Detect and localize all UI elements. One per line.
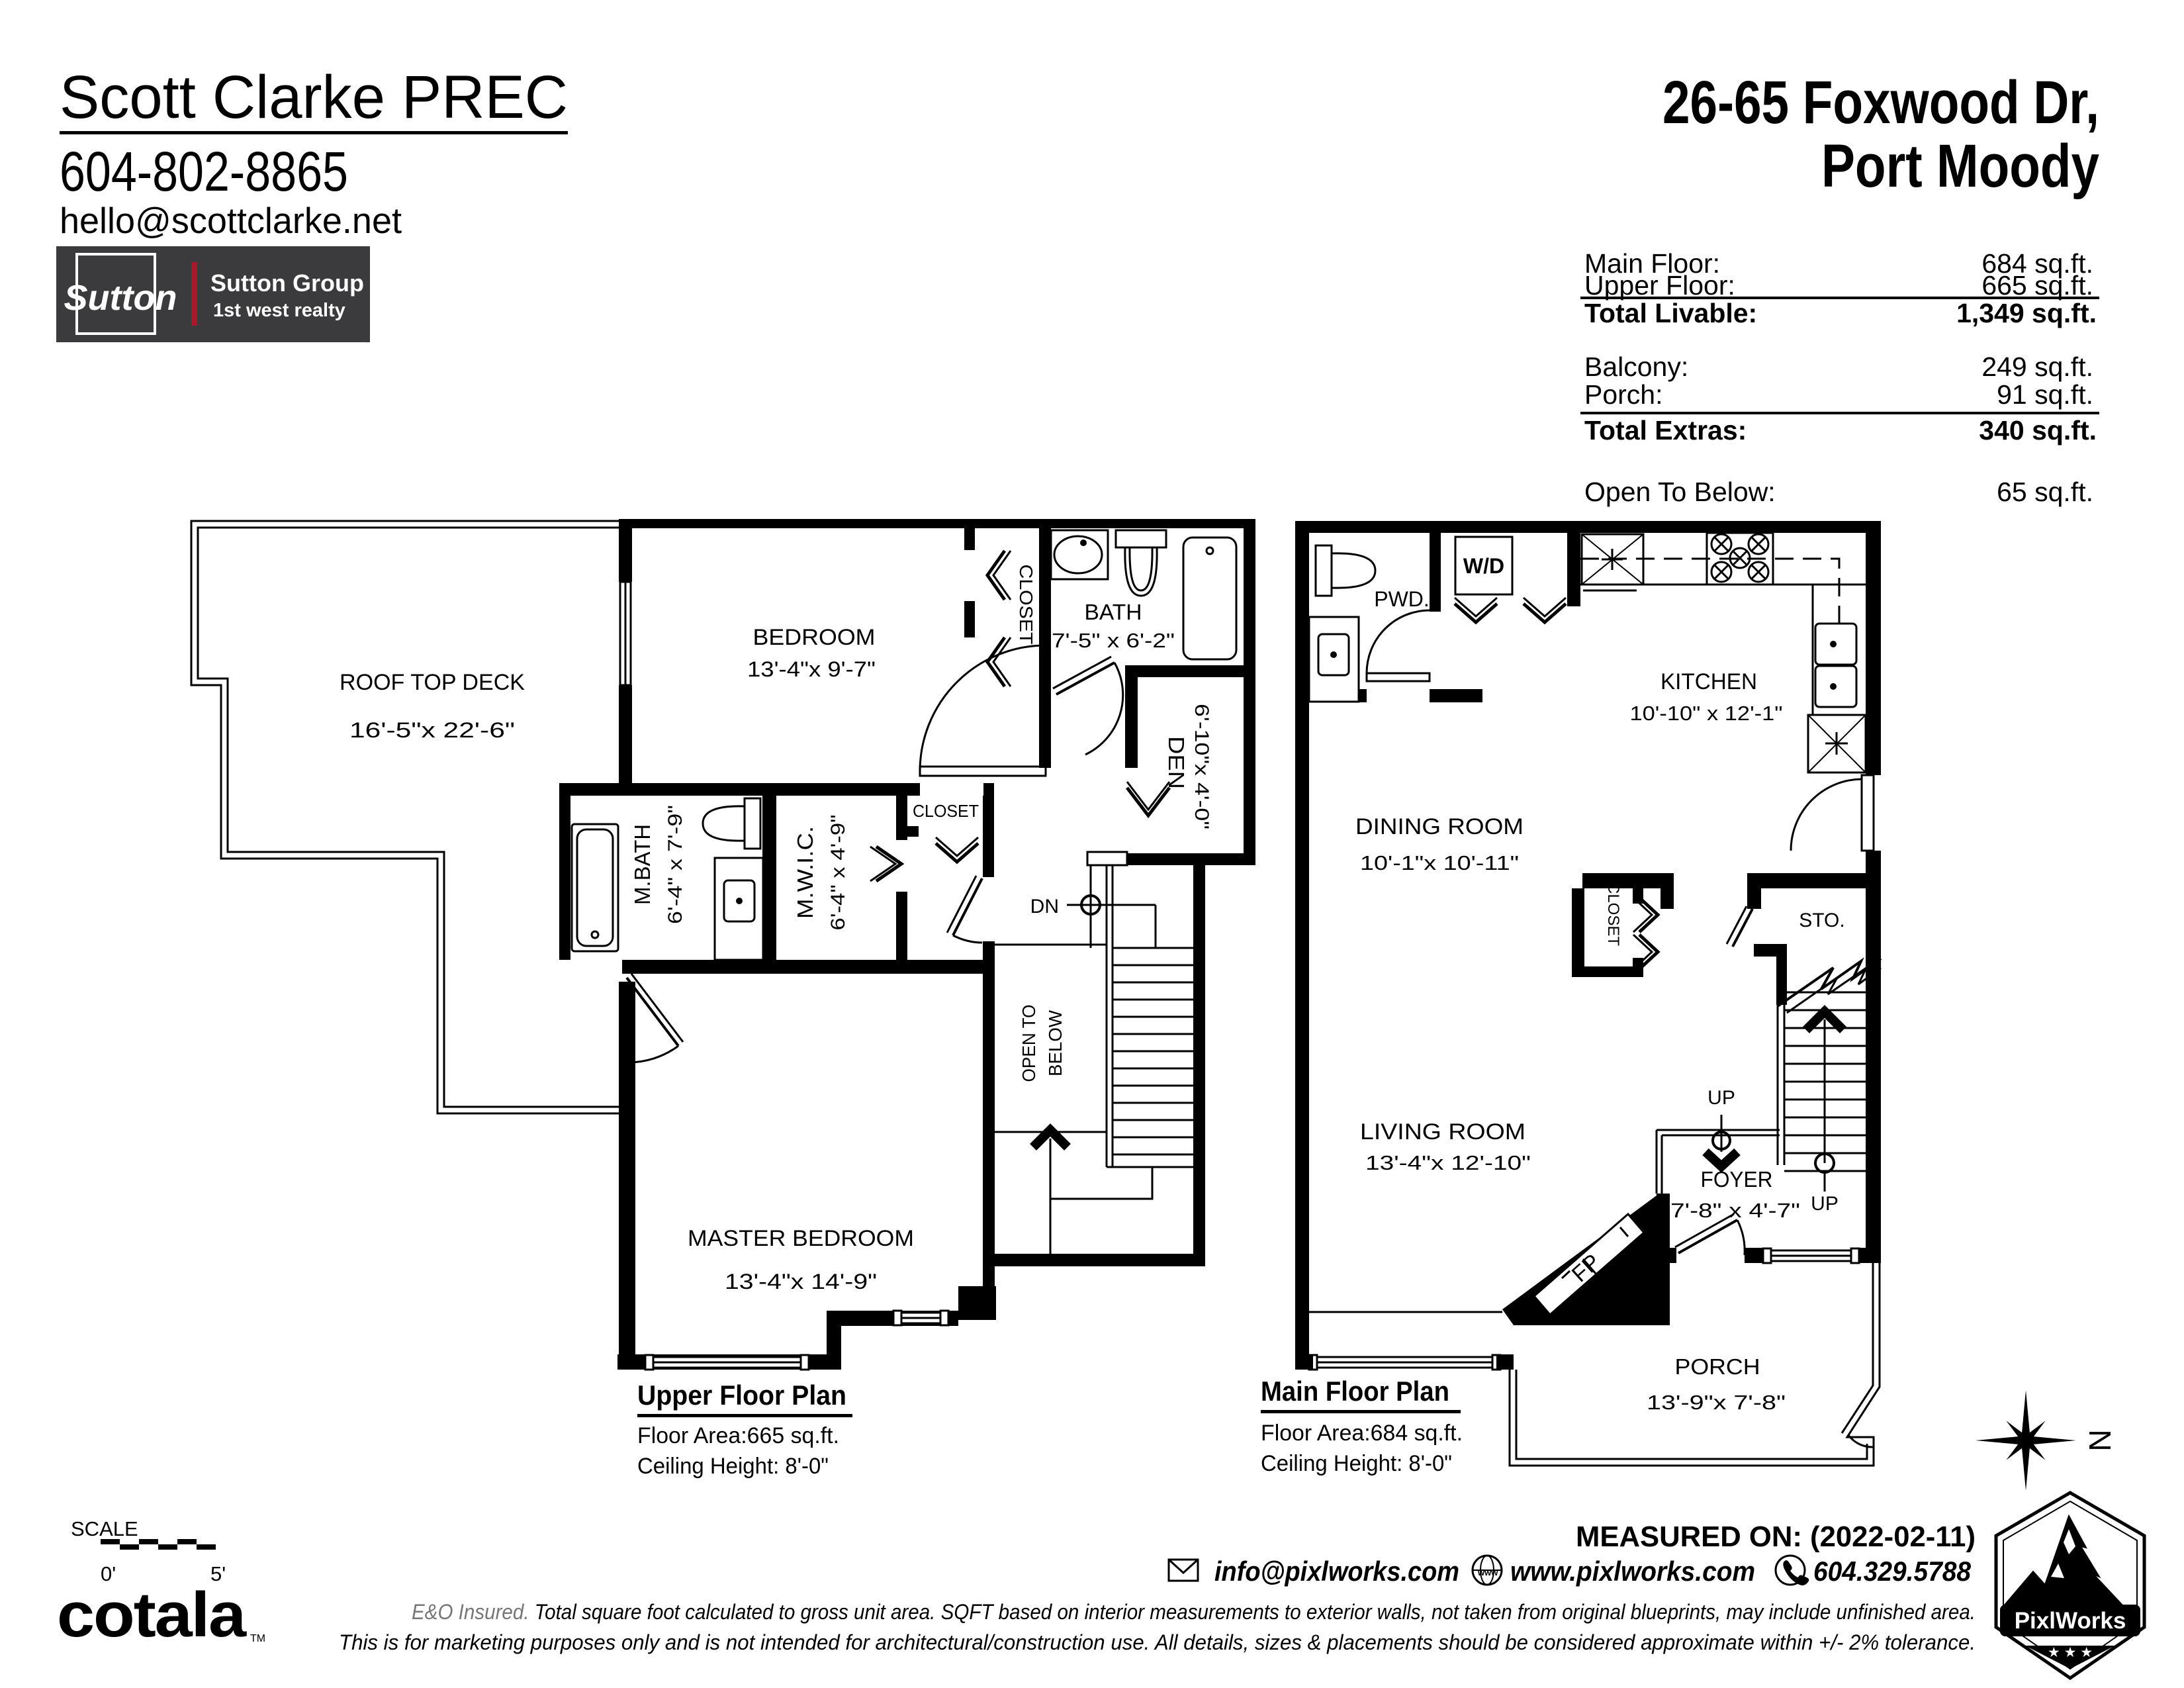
- svg-text:6'-10"x 4'-0": 6'-10"x 4'-0": [1191, 704, 1212, 829]
- svg-text:91 sq.ft.: 91 sq.ft.: [1997, 379, 2093, 410]
- svg-text:Upper Floor:: Upper Floor:: [1584, 270, 1735, 301]
- svg-text:1st west realty: 1st west realty: [213, 300, 345, 321]
- svg-text:Floor Area:684 sq.ft.: Floor Area:684 sq.ft.: [1261, 1421, 1463, 1446]
- svg-text:OPEN TO: OPEN TO: [1019, 1005, 1039, 1082]
- svg-text:604-802-8865: 604-802-8865: [60, 140, 348, 203]
- svg-text:DEN: DEN: [1164, 736, 1189, 789]
- svg-text:13'-9"x 7'-8": 13'-9"x 7'-8": [1647, 1391, 1786, 1414]
- svg-text:6'-4" x 4'-9": 6'-4" x 4'-9": [827, 815, 849, 931]
- svg-text:M.BATH: M.BATH: [630, 824, 655, 905]
- svg-text:hello@scottclarke.net: hello@scottclarke.net: [60, 200, 402, 241]
- svg-text:E&O Insured. Total square foo: E&O Insured. Total square foot calculate…: [412, 1600, 1976, 1624]
- svg-text:BEDROOM: BEDROOM: [753, 625, 876, 650]
- svg-text:LIVING ROOM: LIVING ROOM: [1360, 1119, 1525, 1145]
- svg-text:This is for marketing purposes: This is for marketing purposes only and …: [339, 1630, 1976, 1654]
- svg-text:UP: UP: [1707, 1087, 1735, 1109]
- svg-text:ROOF TOP DECK: ROOF TOP DECK: [340, 670, 525, 695]
- svg-text:www.pixlworks.com: www.pixlworks.com: [1510, 1556, 1755, 1587]
- svg-text:13'-4"x 9'-7": 13'-4"x 9'-7": [747, 657, 876, 681]
- svg-text:W/D: W/D: [1463, 554, 1504, 578]
- svg-text:26-65 Foxwood Dr,: 26-65 Foxwood Dr,: [1662, 69, 2099, 136]
- svg-text:Main Floor Plan: Main Floor Plan: [1261, 1376, 1449, 1407]
- svg-text:13'-4"x 12'-10": 13'-4"x 12'-10": [1365, 1151, 1531, 1174]
- svg-text:340 sq.ft.: 340 sq.ft.: [1979, 415, 2097, 445]
- svg-text:PORCH: PORCH: [1675, 1354, 1760, 1379]
- svg-text:65 sq.ft.: 65 sq.ft.: [1997, 477, 2093, 507]
- svg-text:7'-8" x 4'-7": 7'-8" x 4'-7": [1670, 1199, 1800, 1222]
- svg-text:PixlWorks: PixlWorks: [2015, 1608, 2126, 1634]
- svg-text:CLOSET: CLOSET: [1016, 565, 1036, 645]
- svg-text:TM: TM: [250, 1633, 265, 1644]
- svg-text:BELOW: BELOW: [1045, 1009, 1066, 1076]
- svg-text:7'-5" x 6'-2": 7'-5" x 6'-2": [1052, 629, 1175, 652]
- svg-text:6'-4" x 7'-9": 6'-4" x 7'-9": [664, 805, 686, 924]
- svg-text:Open To Below:: Open To Below:: [1584, 477, 1776, 507]
- svg-text:Ceiling Height: 8'-0": Ceiling Height: 8'-0": [637, 1454, 829, 1479]
- svg-text:Porch:: Porch:: [1584, 379, 1663, 410]
- svg-text:Floor Area:665 sq.ft.: Floor Area:665 sq.ft.: [637, 1423, 839, 1448]
- svg-text:FOYER: FOYER: [1701, 1167, 1773, 1192]
- svg-text:CLOSET: CLOSET: [913, 801, 979, 821]
- svg-text:Port Moody: Port Moody: [1821, 132, 2099, 200]
- svg-text:604.329.5788: 604.329.5788: [1813, 1556, 1972, 1587]
- svg-text:PWD.: PWD.: [1374, 587, 1430, 611]
- svg-text:info@pixlworks.com: info@pixlworks.com: [1214, 1556, 1459, 1587]
- svg-text:Scott Clarke PREC: Scott Clarke PREC: [60, 64, 568, 131]
- svg-text:★ ★ ★: ★ ★ ★: [2048, 1645, 2093, 1660]
- svg-text:Sutton Group: Sutton Group: [210, 269, 364, 297]
- svg-text:Balcony:: Balcony:: [1584, 352, 1688, 382]
- svg-text:DINING ROOM: DINING ROOM: [1355, 814, 1524, 839]
- svg-text:www: www: [1477, 1568, 1498, 1577]
- svg-text:KITCHEN: KITCHEN: [1661, 669, 1757, 694]
- svg-text:SCALE: SCALE: [71, 1517, 138, 1540]
- svg-text:MASTER BEDROOM: MASTER BEDROOM: [688, 1226, 914, 1251]
- svg-text:Ceiling Height: 8'-0": Ceiling Height: 8'-0": [1261, 1451, 1452, 1476]
- svg-text:CLOSET: CLOSET: [1604, 882, 1622, 946]
- svg-text:16'-5"x 22'-6": 16'-5"x 22'-6": [349, 718, 515, 742]
- svg-text:DN: DN: [1030, 896, 1059, 917]
- svg-text:UP: UP: [1811, 1193, 1839, 1215]
- svg-text:249 sq.ft.: 249 sq.ft.: [1981, 352, 2093, 382]
- svg-text:Total Extras:: Total Extras:: [1584, 415, 1747, 445]
- svg-text:STO.: STO.: [1799, 910, 1844, 931]
- svg-text:Sutton: Sutton: [64, 278, 177, 318]
- svg-text:1,349 sq.ft.: 1,349 sq.ft.: [1956, 298, 2097, 328]
- svg-text:cotala: cotala: [57, 1579, 247, 1650]
- svg-text:Upper Floor Plan: Upper Floor Plan: [637, 1380, 846, 1411]
- svg-text:13'-4"x 14'-9": 13'-4"x 14'-9": [725, 1270, 877, 1293]
- svg-text:BATH: BATH: [1085, 600, 1142, 624]
- svg-text:N: N: [2083, 1429, 2117, 1451]
- svg-text:MEASURED ON: (2022-02-11): MEASURED ON: (2022-02-11): [1576, 1521, 1976, 1553]
- svg-text:M.W.I.C.: M.W.I.C.: [793, 826, 817, 919]
- svg-text:10'-1"x 10'-11": 10'-1"x 10'-11": [1360, 851, 1519, 874]
- svg-text:Total Livable:: Total Livable:: [1584, 298, 1757, 328]
- svg-text:10'-10" x 12'-1": 10'-10" x 12'-1": [1630, 702, 1783, 725]
- svg-text:665 sq.ft.: 665 sq.ft.: [1981, 270, 2093, 301]
